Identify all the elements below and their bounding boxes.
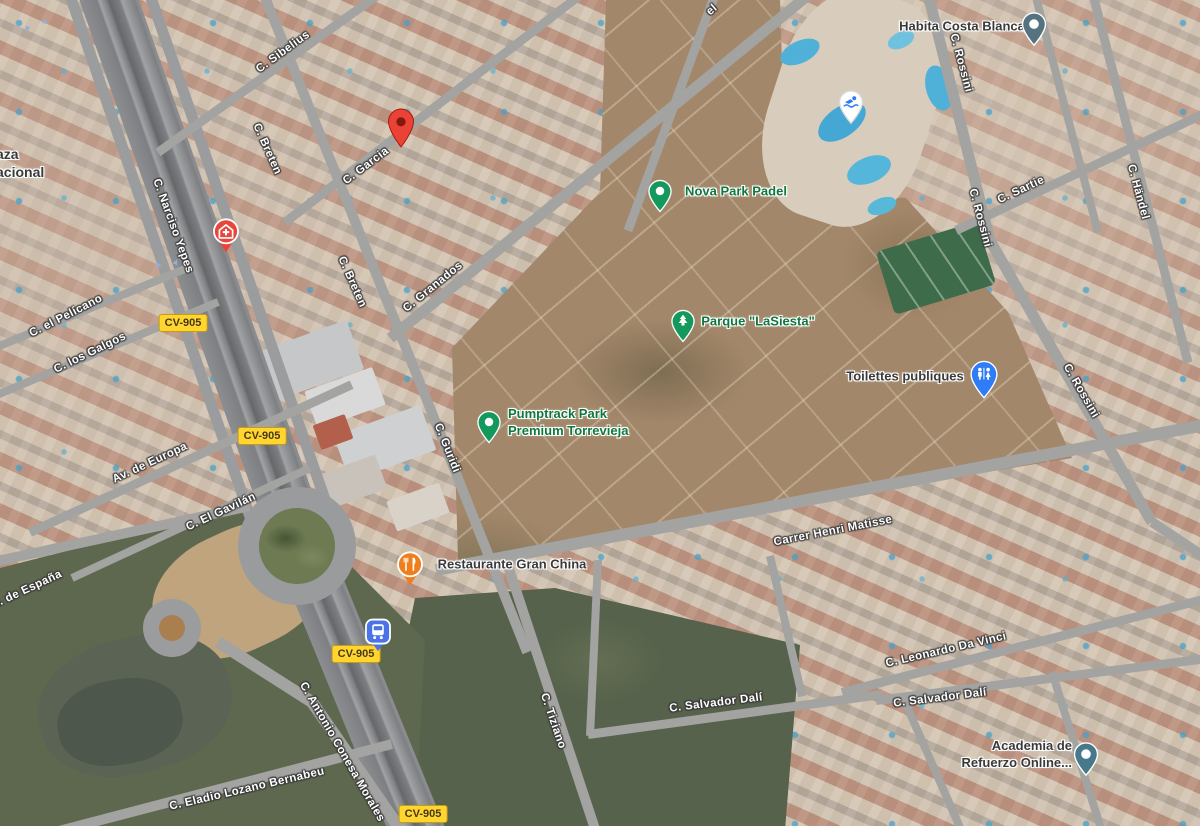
road-shield-cv-905: CV-905 [399,805,448,823]
poi-label-plaza-partial-label[interactable]: azaacional [0,145,44,181]
green-dot-pin-nova-park-padel[interactable] [648,179,673,213]
poi-label-toilettes-publiques[interactable]: Toilettes publiques [846,369,964,386]
steel-dot-pin-habita-costa-blanca[interactable] [1021,12,1047,47]
red-health-pin-health-place[interactable] [212,217,240,253]
road-shield-cv-905: CV-905 [159,314,208,332]
poi-label-parque-lasiesta[interactable]: Parque "LaSiesta" [701,314,814,331]
orange-restaurant-pin-restaurante-gran-china[interactable] [396,550,424,586]
satellite-map-canvas[interactable]: ▲▲▲▲ C. SibeliusC. BretenC. GarciaC. Nar… [0,0,1200,826]
blue-toilets-pin-toilettes-publiques[interactable] [970,360,999,399]
roundabout [259,508,335,584]
white-swim-pin-pool-place[interactable] [838,90,864,125]
poi-label-nova-park-padel[interactable]: Nova Park Padel [685,184,787,201]
dropped-red-marker[interactable] [388,108,415,148]
poi-label-pumptrack-park-premium-torrevieja[interactable]: Pumptrack ParkPremium Torrevieja [508,406,628,440]
blue-bus-pin-bus-stop[interactable] [365,618,392,652]
poi-label-restaurante-gran-china[interactable]: Restaurante Gran China [438,557,587,574]
poi-label-habita-costa-blanca[interactable]: Habita Costa Blanca [899,19,1025,36]
road-shield-cv-905: CV-905 [238,427,287,445]
teal-dot-pin-academia-de-refuerzo-online[interactable] [1073,742,1099,777]
roundabout [159,615,185,641]
green-dot-pin-pumptrack-park-premium-torrevieja[interactable] [477,410,502,444]
green-tree-pin-parque-lasiesta[interactable] [671,309,696,343]
poi-label-academia-de-refuerzo-online[interactable]: Academia deRefuerzo Online... [961,738,1072,772]
